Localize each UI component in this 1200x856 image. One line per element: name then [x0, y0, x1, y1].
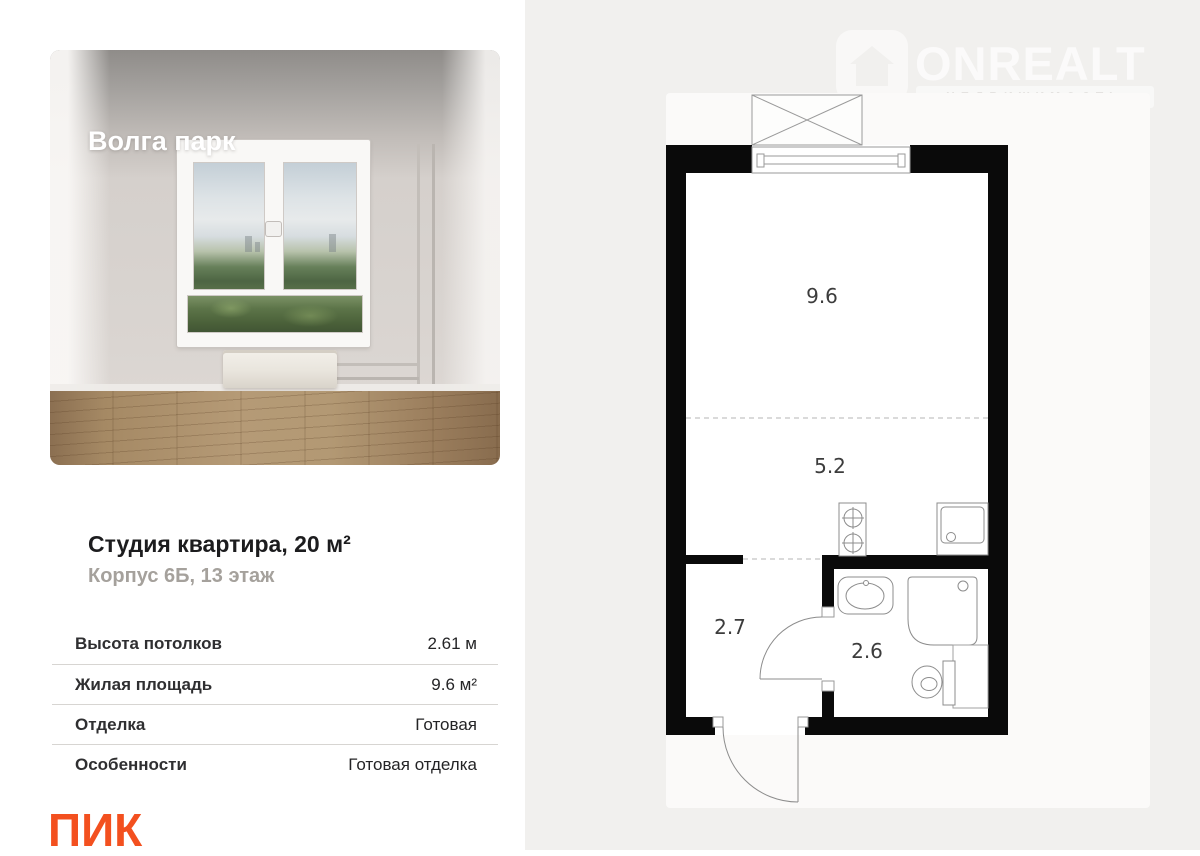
- listing-subtitle: Корпус 6Б, 13 этаж: [88, 565, 274, 588]
- stove-icon: [839, 503, 866, 556]
- kitchen-sink-icon: [937, 503, 988, 555]
- watermark-brand: ONREALT: [915, 36, 1146, 91]
- project-name-overlay: Волга парк: [88, 126, 236, 157]
- spec-value: 9.6 м²: [431, 675, 477, 695]
- duct-box: [953, 645, 988, 708]
- spec-label: Особенности: [75, 755, 187, 775]
- photo-vignette: [50, 50, 500, 465]
- apartment-photo: Волга парк: [50, 50, 500, 465]
- spec-row-living-area: Жилая площадь 9.6 м²: [52, 664, 498, 704]
- room-area-living: 9.6: [806, 284, 838, 308]
- spec-value: 2.61 м: [428, 634, 478, 654]
- house-glyph: [850, 46, 894, 86]
- spec-label: Отделка: [75, 715, 145, 735]
- pik-developer-logo: ПИК: [48, 810, 142, 850]
- wash-basin-icon: [838, 577, 893, 614]
- spec-table: Высота потолков 2.61 м Жилая площадь 9.6…: [52, 624, 498, 784]
- room-area-bathroom: 2.6: [851, 639, 883, 663]
- balcony-icon: [752, 95, 862, 145]
- spec-label: Высота потолков: [75, 634, 222, 654]
- window-icon: [752, 147, 910, 173]
- spec-row-features: Особенности Готовая отделка: [52, 744, 498, 784]
- spec-value: Готовая отделка: [348, 755, 477, 775]
- spec-label: Жилая площадь: [75, 675, 212, 695]
- house-icon: [836, 30, 908, 102]
- spec-value: Готовая: [415, 715, 477, 735]
- entrance-door-icon: [723, 727, 798, 802]
- floor-plan-card: 9.6 5.2 2.7 2.6: [666, 93, 1150, 808]
- floor-plan-drawing: [666, 93, 1150, 808]
- spec-row-finishing: Отделка Готовая: [52, 704, 498, 744]
- shower-icon: [908, 577, 977, 645]
- room-area-kitchen: 5.2: [814, 454, 846, 478]
- spec-row-ceiling-height: Высота потолков 2.61 м: [52, 624, 498, 664]
- listing-title: Студия квартира, 20 м²: [88, 531, 351, 558]
- room-area-hallway: 2.7: [714, 615, 746, 639]
